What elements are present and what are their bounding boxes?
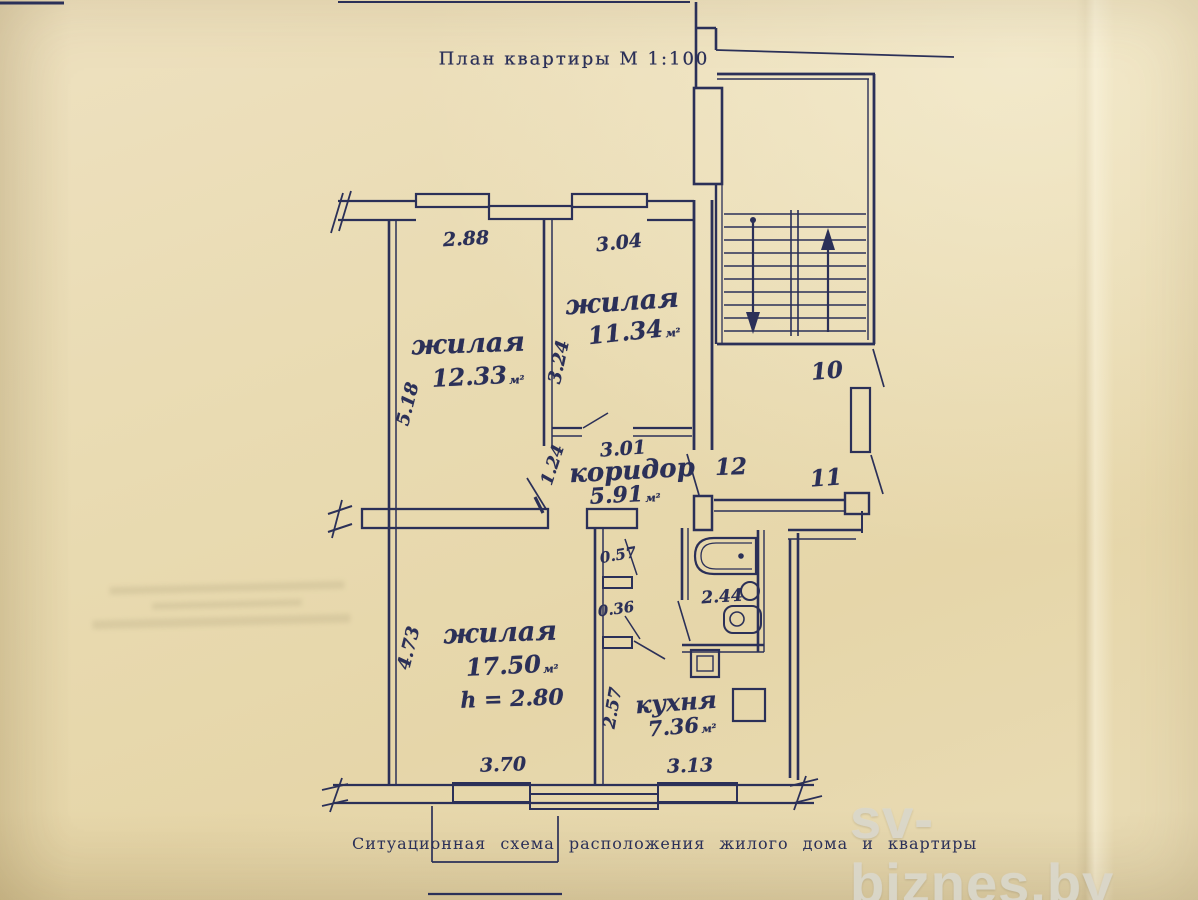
room2-area-unit: м² bbox=[665, 326, 682, 341]
hall-number-11: 11 bbox=[809, 463, 843, 492]
drain bbox=[738, 553, 744, 559]
window bbox=[530, 794, 658, 809]
room3-area: 17.50м² bbox=[465, 648, 559, 682]
stove bbox=[691, 650, 719, 677]
corridor-area: 5.91м² bbox=[589, 480, 661, 510]
dim-bathroom-width: 2.44 bbox=[701, 586, 744, 609]
kitchen-area-unit: м² bbox=[701, 722, 717, 736]
corridor-area-value: 5.91 bbox=[589, 481, 644, 510]
top-edge-lines bbox=[0, 2, 690, 3]
wall-break-mark bbox=[330, 778, 342, 812]
room3-area-unit: м² bbox=[543, 662, 559, 676]
room1-name: жилая bbox=[411, 327, 526, 362]
door-swing bbox=[678, 601, 690, 641]
room1-area: 12.33м² bbox=[431, 359, 525, 393]
door-leaf bbox=[535, 497, 543, 513]
corridor-top-wall bbox=[552, 413, 692, 436]
entrance-door-leaf bbox=[851, 388, 870, 452]
sink bbox=[741, 582, 759, 600]
stairwell bbox=[694, 2, 954, 344]
right-outer-wall bbox=[790, 533, 798, 780]
window bbox=[416, 194, 489, 207]
door-swing bbox=[583, 413, 608, 428]
watermark: sv-biznes.by bbox=[850, 786, 1198, 900]
stair-treads bbox=[724, 214, 866, 331]
plan-title: План квартиры М 1:100 bbox=[439, 49, 710, 70]
corridor-area-unit: м² bbox=[645, 491, 661, 505]
hallway-wall-and-closets bbox=[595, 528, 665, 786]
room1-area-unit: м² bbox=[509, 373, 525, 387]
window bbox=[489, 206, 572, 219]
hall-number-12: 12 bbox=[715, 453, 748, 481]
room3-height-note: h = 2.80 bbox=[460, 684, 564, 714]
wall-stub bbox=[603, 577, 632, 588]
wall-stub bbox=[603, 637, 632, 648]
left-exterior-wall bbox=[389, 220, 396, 786]
room3-name: жилая bbox=[443, 616, 558, 651]
dim-room3-width: 3.70 bbox=[479, 753, 526, 777]
kitchen-unit bbox=[733, 689, 765, 721]
door-swing bbox=[873, 349, 884, 387]
window bbox=[572, 194, 647, 207]
wall-break-mark bbox=[339, 191, 351, 231]
stairs-up-arrow bbox=[821, 228, 835, 332]
scanned-floor-plan-page: План квартиры М 1:100 2.88 3.04 5.18 3.2… bbox=[0, 0, 1198, 900]
bottom-exterior-wall bbox=[322, 776, 822, 812]
room3-area-value: 17.50 bbox=[465, 649, 542, 682]
room1-area-value: 12.33 bbox=[431, 360, 508, 393]
dim-room1-width: 2.88 bbox=[442, 227, 489, 251]
kitchen-area-value: 7.36 bbox=[647, 712, 700, 741]
bathtub bbox=[695, 538, 756, 574]
door-swing bbox=[871, 455, 883, 494]
entry-hall-walls bbox=[714, 349, 884, 539]
door-swing bbox=[625, 616, 640, 639]
wall-pier bbox=[845, 493, 869, 514]
stairs-down-arrow bbox=[746, 217, 760, 334]
top-exterior-wall bbox=[331, 191, 694, 233]
hall-number-10: 10 bbox=[810, 356, 844, 386]
dim-kitchen-width: 3.13 bbox=[666, 754, 713, 778]
toilet bbox=[724, 606, 761, 633]
kitchen-door-swing bbox=[634, 641, 665, 659]
upper-wall-line bbox=[716, 50, 954, 57]
wall-break-mark bbox=[794, 776, 806, 810]
wall-pilaster bbox=[694, 88, 722, 184]
